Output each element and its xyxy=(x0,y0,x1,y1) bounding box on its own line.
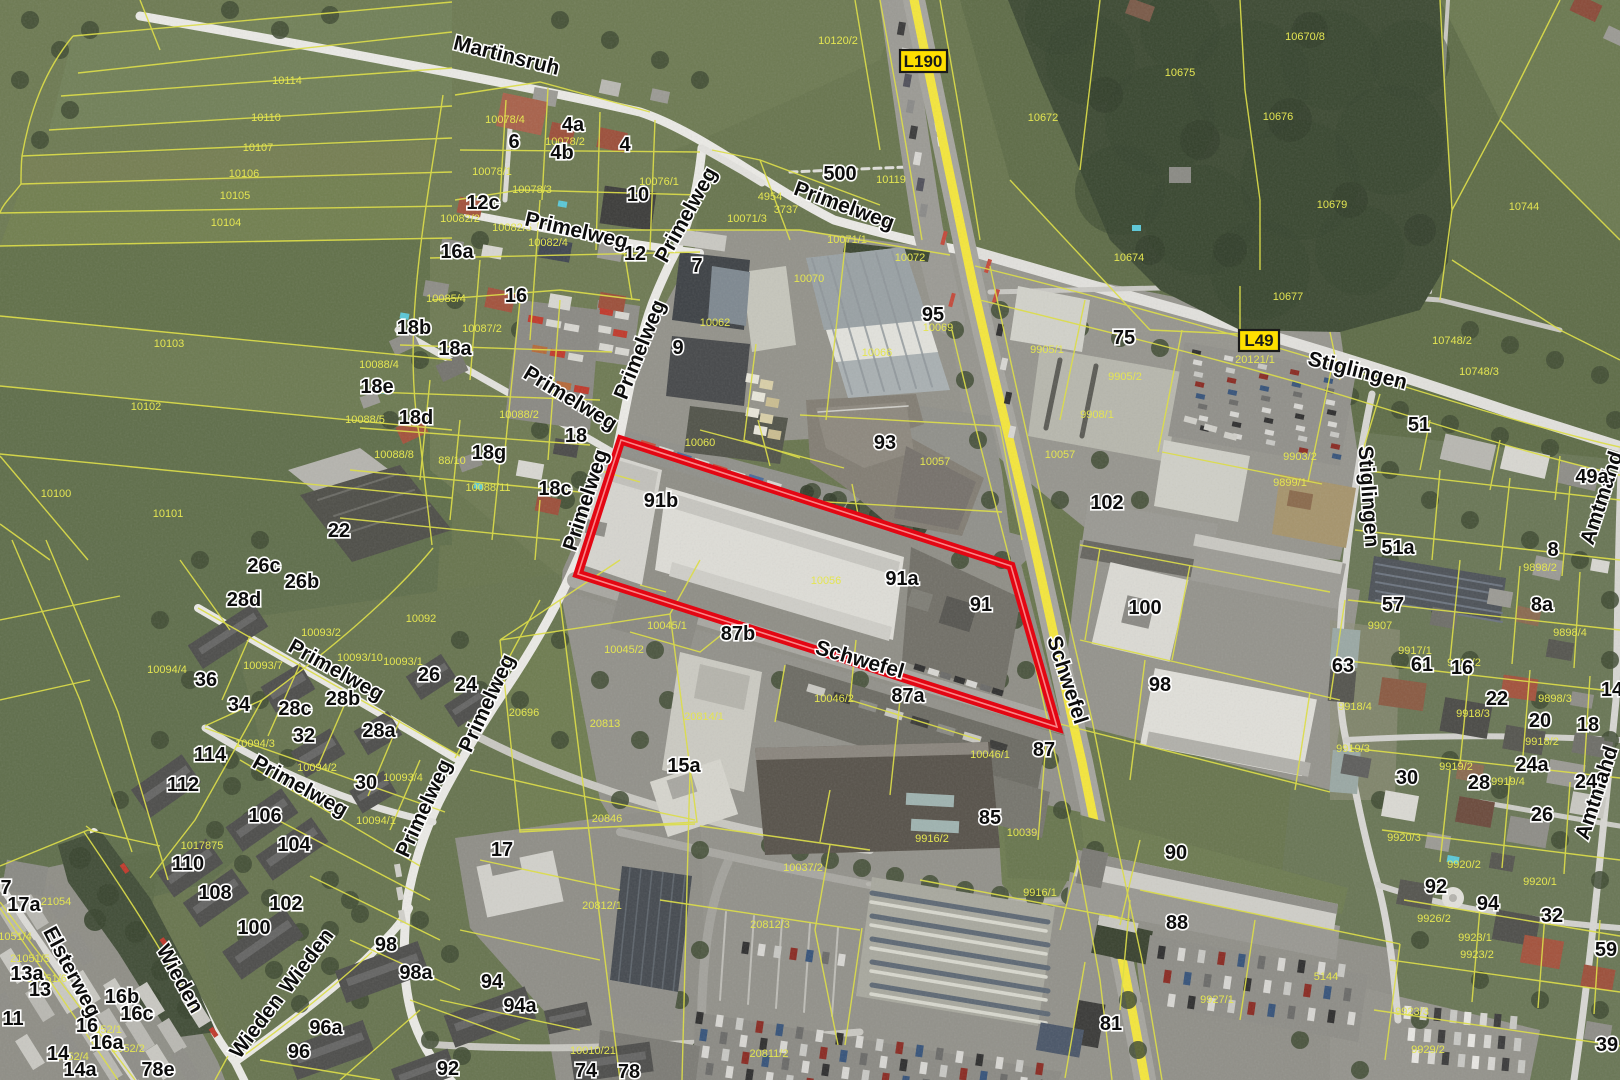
svg-text:20811/2: 20811/2 xyxy=(750,1048,789,1060)
svg-text:10066: 10066 xyxy=(862,347,893,359)
svg-text:10679: 10679 xyxy=(1317,199,1348,211)
svg-text:10748/3: 10748/3 xyxy=(1459,366,1499,378)
svg-text:15a: 15a xyxy=(667,755,701,777)
svg-text:12: 12 xyxy=(624,243,646,265)
svg-text:92: 92 xyxy=(437,1058,459,1080)
svg-text:98a: 98a xyxy=(399,962,433,984)
svg-text:8: 8 xyxy=(1547,539,1558,561)
svg-text:10087/2: 10087/2 xyxy=(462,323,502,335)
svg-text:10748/2: 10748/2 xyxy=(1432,335,1472,347)
svg-text:81: 81 xyxy=(1100,1013,1122,1035)
svg-text:10100: 10100 xyxy=(41,488,72,500)
svg-text:28a: 28a xyxy=(362,720,396,742)
svg-text:57: 57 xyxy=(1382,594,1404,616)
svg-text:95: 95 xyxy=(922,304,944,326)
svg-text:110: 110 xyxy=(172,853,204,875)
svg-text:20: 20 xyxy=(1529,710,1551,732)
svg-text:59: 59 xyxy=(1595,939,1617,961)
svg-text:4b: 4b xyxy=(550,142,573,164)
svg-text:61: 61 xyxy=(1411,654,1433,676)
svg-text:9920/1: 9920/1 xyxy=(1523,876,1557,888)
svg-text:14a: 14a xyxy=(63,1059,97,1080)
svg-text:10104: 10104 xyxy=(211,217,242,229)
svg-text:32: 32 xyxy=(293,725,315,747)
svg-text:10106: 10106 xyxy=(229,168,260,180)
svg-text:9918/2: 9918/2 xyxy=(1525,736,1559,748)
svg-text:10677: 10677 xyxy=(1273,291,1304,303)
svg-text:39: 39 xyxy=(1596,1034,1618,1056)
svg-text:18a: 18a xyxy=(438,338,472,360)
svg-text:102: 102 xyxy=(269,893,302,915)
svg-text:114: 114 xyxy=(194,744,227,766)
svg-text:18: 18 xyxy=(1577,714,1599,736)
svg-text:16a: 16a xyxy=(440,241,474,263)
svg-text:10078/1: 10078/1 xyxy=(472,166,512,178)
svg-text:24a: 24a xyxy=(1515,754,1549,776)
svg-text:49a: 49a xyxy=(1575,466,1609,488)
svg-text:9923/3: 9923/3 xyxy=(1395,1006,1429,1018)
svg-text:10046/1: 10046/1 xyxy=(970,749,1010,761)
svg-text:9916/2: 9916/2 xyxy=(915,833,949,845)
svg-text:75: 75 xyxy=(1113,327,1135,349)
svg-text:11: 11 xyxy=(2,1008,23,1030)
svg-text:17: 17 xyxy=(491,839,513,861)
svg-text:14: 14 xyxy=(1601,679,1620,701)
svg-text:10093/7: 10093/7 xyxy=(243,660,283,672)
svg-text:98: 98 xyxy=(1149,674,1171,696)
svg-text:26: 26 xyxy=(418,664,440,686)
svg-text:20812/1: 20812/1 xyxy=(582,900,622,912)
svg-text:112: 112 xyxy=(167,774,199,796)
svg-text:28d: 28d xyxy=(227,589,261,611)
svg-text:10107: 10107 xyxy=(243,142,274,154)
svg-text:10119: 10119 xyxy=(876,174,906,186)
svg-text:28c: 28c xyxy=(278,698,311,720)
svg-text:88/10: 88/10 xyxy=(438,455,466,467)
svg-text:26: 26 xyxy=(1531,804,1553,826)
svg-text:74: 74 xyxy=(575,1060,598,1080)
svg-text:10045/1: 10045/1 xyxy=(647,620,687,632)
svg-text:20846: 20846 xyxy=(592,813,623,825)
svg-text:L49: L49 xyxy=(1244,331,1273,350)
svg-text:26b: 26b xyxy=(285,571,319,593)
svg-text:7: 7 xyxy=(0,877,11,899)
svg-text:10056: 10056 xyxy=(811,575,842,587)
svg-text:4: 4 xyxy=(619,134,631,156)
svg-text:90: 90 xyxy=(1165,842,1187,864)
svg-text:26c: 26c xyxy=(247,555,280,577)
svg-text:9920/3: 9920/3 xyxy=(1387,832,1421,844)
svg-text:10037/2: 10037/2 xyxy=(783,862,823,874)
svg-text:20696: 20696 xyxy=(509,707,540,719)
svg-text:20814/1: 20814/1 xyxy=(684,711,724,723)
svg-text:18d: 18d xyxy=(399,407,433,429)
svg-text:10110: 10110 xyxy=(251,112,281,124)
svg-text:10093/4: 10093/4 xyxy=(383,772,423,784)
svg-text:9918/4: 9918/4 xyxy=(1338,701,1372,713)
svg-text:10094/3: 10094/3 xyxy=(235,738,275,750)
svg-text:10102: 10102 xyxy=(131,401,162,413)
svg-text:10010/21: 10010/21 xyxy=(570,1045,616,1057)
svg-text:10670/8: 10670/8 xyxy=(1285,31,1325,43)
svg-text:1017875: 1017875 xyxy=(181,840,224,852)
svg-text:9923/1: 9923/1 xyxy=(1458,932,1492,944)
svg-text:10105: 10105 xyxy=(220,190,251,202)
svg-text:3737: 3737 xyxy=(774,204,798,216)
svg-text:10093/2: 10093/2 xyxy=(301,627,341,639)
svg-text:9926/2: 9926/2 xyxy=(1417,913,1451,925)
svg-text:91a: 91a xyxy=(885,568,919,590)
svg-text:78: 78 xyxy=(618,1061,640,1080)
svg-text:10088/2: 10088/2 xyxy=(499,409,539,421)
svg-text:10103: 10103 xyxy=(154,338,185,350)
svg-text:10744: 10744 xyxy=(1509,201,1540,213)
svg-text:28: 28 xyxy=(1468,772,1490,794)
svg-text:87b: 87b xyxy=(721,623,755,645)
svg-text:24: 24 xyxy=(455,674,478,696)
svg-text:10060: 10060 xyxy=(685,437,716,449)
svg-text:21054: 21054 xyxy=(41,896,72,908)
svg-text:9898/4: 9898/4 xyxy=(1553,627,1587,639)
svg-text:32: 32 xyxy=(1541,905,1563,927)
svg-text:94: 94 xyxy=(1477,893,1500,915)
svg-text:10045/2: 10045/2 xyxy=(604,644,644,656)
svg-text:16c: 16c xyxy=(120,1003,153,1025)
svg-text:21051/4: 21051/4 xyxy=(0,931,32,943)
svg-text:10088/5: 10088/5 xyxy=(345,414,385,426)
svg-text:51: 51 xyxy=(1408,414,1430,436)
svg-text:34: 34 xyxy=(228,694,251,716)
svg-text:10094/1: 10094/1 xyxy=(356,815,396,827)
svg-text:92: 92 xyxy=(1425,876,1447,898)
svg-text:88: 88 xyxy=(1166,912,1188,934)
svg-text:10072: 10072 xyxy=(895,252,926,264)
svg-text:9908/1: 9908/1 xyxy=(1080,409,1114,421)
svg-text:10088/8: 10088/8 xyxy=(374,449,414,461)
svg-text:5144: 5144 xyxy=(1314,971,1338,983)
svg-text:10071/1: 10071/1 xyxy=(827,234,867,246)
svg-text:10672: 10672 xyxy=(1028,112,1059,124)
svg-text:9903/2: 9903/2 xyxy=(1283,451,1317,463)
svg-text:9905/2: 9905/2 xyxy=(1108,371,1142,383)
svg-text:18e: 18e xyxy=(360,376,393,398)
svg-text:100: 100 xyxy=(1128,597,1161,619)
svg-text:9919/3: 9919/3 xyxy=(1336,743,1370,755)
svg-text:L190: L190 xyxy=(904,52,943,71)
svg-text:9: 9 xyxy=(672,337,683,359)
svg-text:87a: 87a xyxy=(891,685,925,707)
svg-text:9923/2: 9923/2 xyxy=(1460,949,1494,961)
svg-text:28b: 28b xyxy=(326,688,360,710)
svg-text:63: 63 xyxy=(1332,655,1354,677)
svg-text:10078/4: 10078/4 xyxy=(485,114,525,126)
svg-text:10078/3: 10078/3 xyxy=(512,184,552,196)
svg-text:18b: 18b xyxy=(397,317,431,339)
svg-text:87: 87 xyxy=(1033,739,1055,761)
svg-text:51a: 51a xyxy=(1381,537,1415,559)
svg-text:36: 36 xyxy=(195,669,217,691)
svg-text:93: 93 xyxy=(874,432,896,454)
svg-text:10094/2: 10094/2 xyxy=(297,762,337,774)
svg-text:94: 94 xyxy=(481,971,504,993)
svg-text:10674: 10674 xyxy=(1114,252,1145,264)
svg-text:17a: 17a xyxy=(7,894,41,916)
svg-text:10088/4: 10088/4 xyxy=(359,359,399,371)
svg-text:12c: 12c xyxy=(466,192,499,214)
svg-text:10092: 10092 xyxy=(406,613,437,625)
svg-text:10082/2: 10082/2 xyxy=(440,213,480,225)
svg-text:91b: 91b xyxy=(644,490,678,512)
svg-text:94a: 94a xyxy=(503,995,537,1017)
svg-text:18c: 18c xyxy=(538,478,571,500)
svg-text:102: 102 xyxy=(1090,492,1123,514)
svg-text:10114: 10114 xyxy=(272,75,302,87)
svg-text:16: 16 xyxy=(505,285,527,307)
svg-text:8a: 8a xyxy=(1531,594,1554,616)
svg-text:10094/4: 10094/4 xyxy=(147,664,187,676)
svg-text:9916/1: 9916/1 xyxy=(1023,887,1057,899)
svg-text:10046/2: 10046/2 xyxy=(814,693,854,705)
svg-text:10071/3: 10071/3 xyxy=(727,213,767,225)
svg-text:10057: 10057 xyxy=(920,456,951,468)
svg-text:10675: 10675 xyxy=(1165,67,1196,79)
svg-text:6: 6 xyxy=(508,131,519,153)
svg-text:7: 7 xyxy=(691,255,702,277)
svg-text:13: 13 xyxy=(29,979,51,1001)
svg-text:10120/2: 10120/2 xyxy=(818,35,858,47)
svg-text:16: 16 xyxy=(1451,657,1473,679)
svg-text:30: 30 xyxy=(1396,767,1418,789)
svg-text:10070: 10070 xyxy=(794,273,825,285)
svg-text:85: 85 xyxy=(979,807,1001,829)
svg-text:18g: 18g xyxy=(472,442,506,464)
svg-text:20812/3: 20812/3 xyxy=(750,919,790,931)
svg-text:10057: 10057 xyxy=(1045,449,1076,461)
svg-text:108: 108 xyxy=(198,882,231,904)
svg-text:9898/2: 9898/2 xyxy=(1523,562,1557,574)
svg-text:10062: 10062 xyxy=(700,317,731,329)
svg-text:9929/2: 9929/2 xyxy=(1411,1044,1445,1056)
svg-text:78e: 78e xyxy=(141,1059,174,1080)
svg-text:16a: 16a xyxy=(90,1032,124,1054)
svg-text:22: 22 xyxy=(1486,688,1508,710)
svg-text:500: 500 xyxy=(823,163,856,185)
svg-text:4954: 4954 xyxy=(758,191,782,203)
svg-text:10085/4: 10085/4 xyxy=(426,293,466,305)
svg-text:9919/4: 9919/4 xyxy=(1491,776,1525,788)
svg-text:104: 104 xyxy=(277,834,311,856)
svg-text:10039: 10039 xyxy=(1007,827,1038,839)
svg-text:96: 96 xyxy=(288,1041,310,1063)
svg-text:106: 106 xyxy=(248,805,281,827)
svg-text:9899/1: 9899/1 xyxy=(1273,477,1307,489)
svg-text:91: 91 xyxy=(970,594,992,616)
svg-text:9927/1: 9927/1 xyxy=(1200,994,1234,1006)
svg-text:9918/3: 9918/3 xyxy=(1456,708,1490,720)
svg-text:9905/1: 9905/1 xyxy=(1030,344,1064,356)
svg-text:98: 98 xyxy=(375,934,397,956)
svg-text:20121/1: 20121/1 xyxy=(1235,354,1275,366)
svg-text:9907: 9907 xyxy=(1368,620,1392,632)
svg-text:18: 18 xyxy=(565,425,587,447)
svg-text:100: 100 xyxy=(237,917,270,939)
svg-text:10088/11: 10088/11 xyxy=(465,482,510,494)
svg-text:22: 22 xyxy=(328,520,350,542)
svg-text:10101: 10101 xyxy=(153,508,184,520)
svg-text:10676: 10676 xyxy=(1263,111,1294,123)
svg-text:30: 30 xyxy=(355,772,377,794)
svg-text:10: 10 xyxy=(627,184,649,206)
svg-text:4a: 4a xyxy=(562,114,585,136)
svg-text:9920/2: 9920/2 xyxy=(1447,859,1481,871)
svg-text:96a: 96a xyxy=(309,1017,343,1039)
svg-text:20813: 20813 xyxy=(590,718,621,730)
svg-text:9898/3: 9898/3 xyxy=(1538,693,1572,705)
svg-text:24: 24 xyxy=(1575,771,1598,793)
